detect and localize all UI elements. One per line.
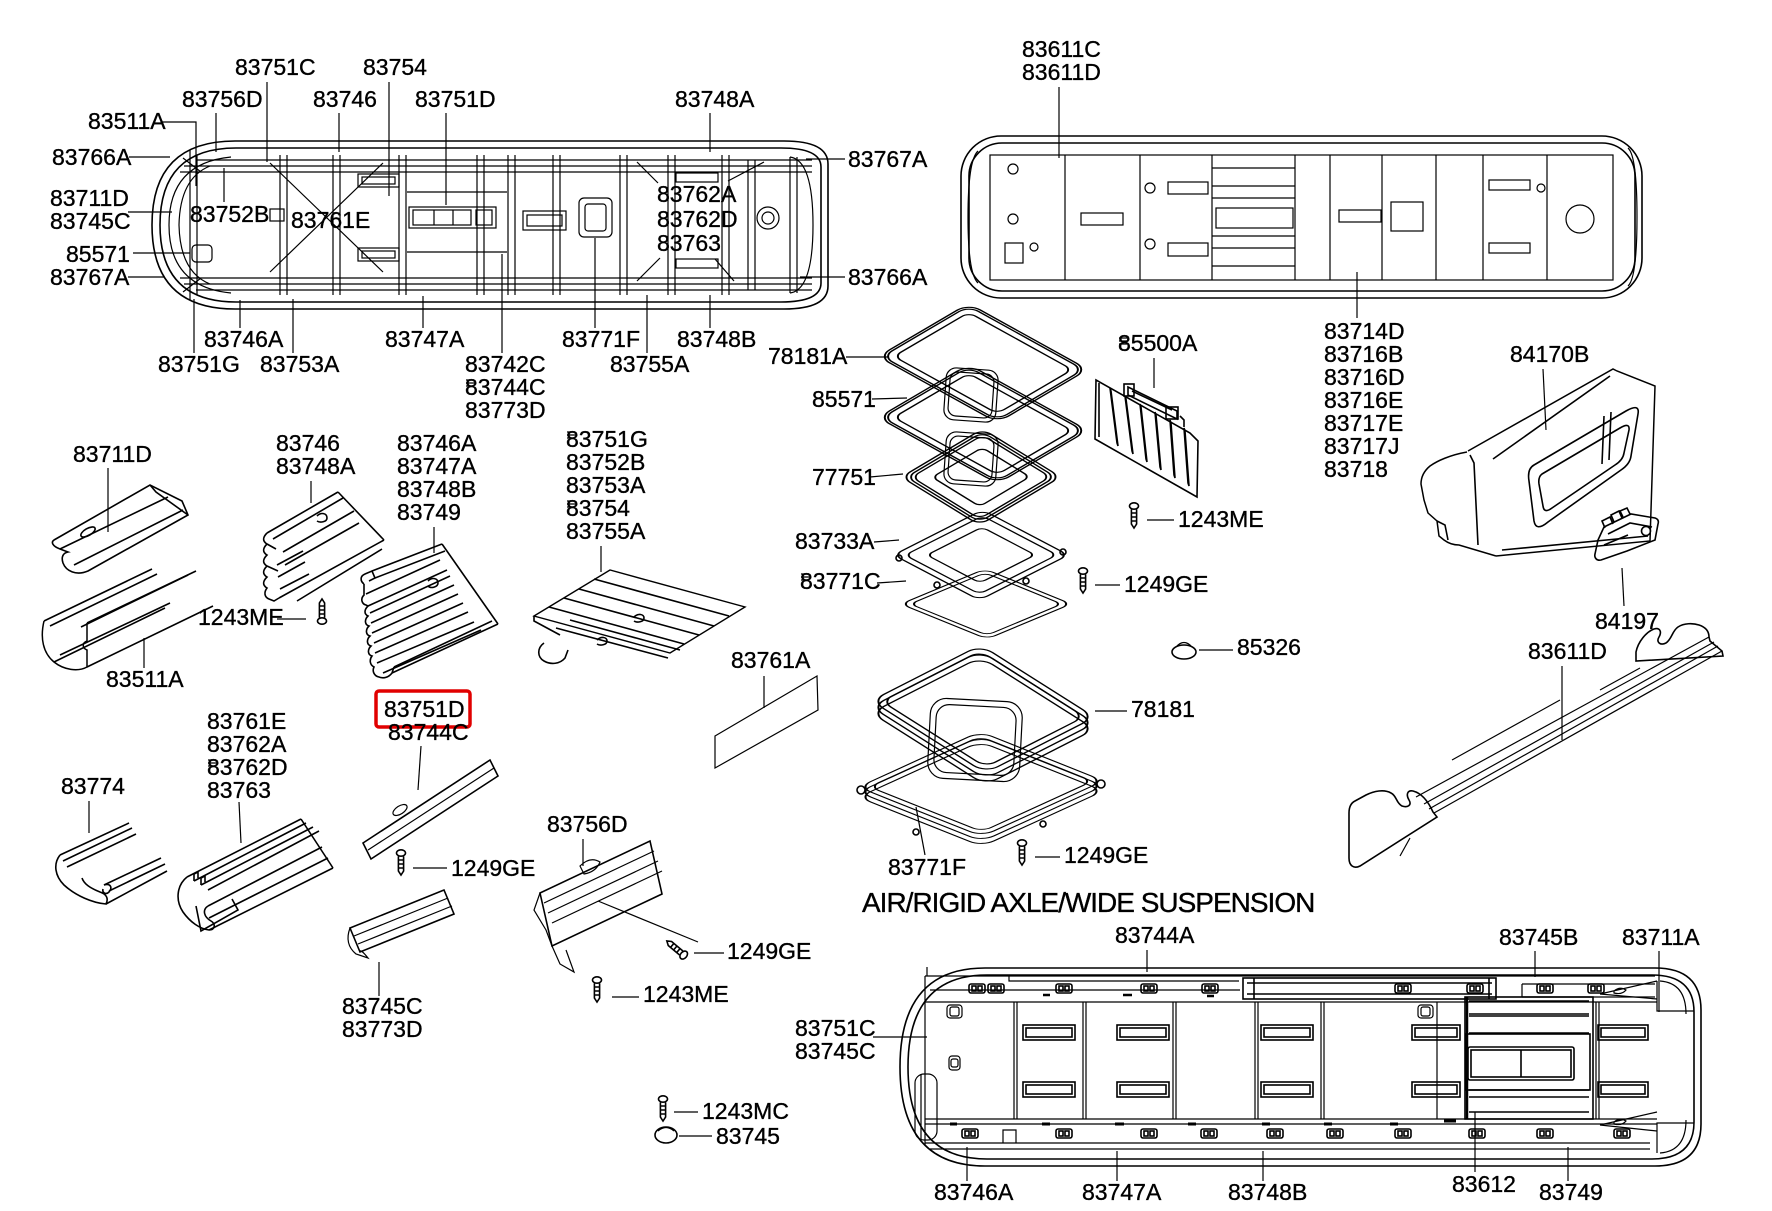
svg-text:1243MC: 1243MC: [702, 1098, 789, 1124]
svg-text:83774: 83774: [61, 773, 125, 799]
svg-text:83767A: 83767A: [848, 146, 928, 172]
svg-text:83748A: 83748A: [276, 453, 356, 479]
svg-text:83749: 83749: [397, 499, 461, 525]
svg-text:77751: 77751: [812, 464, 876, 490]
svg-text:83771F: 83771F: [562, 326, 640, 352]
svg-text:83749: 83749: [1539, 1179, 1603, 1205]
svg-text:1243ME: 1243ME: [1178, 506, 1264, 532]
svg-text:83511A: 83511A: [106, 666, 184, 692]
svg-text:85326: 85326: [1237, 634, 1301, 660]
svg-text:1249GE: 1249GE: [727, 938, 811, 964]
svg-text:83745B: 83745B: [1499, 924, 1578, 950]
svg-text:83771C: 83771C: [800, 568, 881, 594]
svg-text:83612: 83612: [1452, 1171, 1516, 1197]
svg-text:78181: 78181: [1131, 696, 1195, 722]
svg-text:83755A: 83755A: [566, 518, 646, 544]
svg-text:83748B: 83748B: [1228, 1179, 1307, 1205]
svg-text:85500A: 85500A: [1118, 330, 1198, 356]
svg-text:83754: 83754: [363, 54, 427, 80]
svg-text:83767A: 83767A: [50, 264, 130, 290]
svg-text:83711D: 83711D: [73, 441, 152, 467]
svg-text:83745C: 83745C: [50, 208, 131, 234]
svg-text:1243ME: 1243ME: [198, 604, 284, 630]
svg-text:83748A: 83748A: [675, 86, 755, 112]
svg-text:83745: 83745: [716, 1123, 780, 1149]
svg-text:83756D: 83756D: [182, 86, 263, 112]
svg-text:1243ME: 1243ME: [643, 981, 729, 1007]
svg-text:83753A: 83753A: [260, 351, 340, 377]
svg-text:83511A: 83511A: [88, 108, 166, 134]
svg-text:83766A: 83766A: [848, 264, 928, 290]
svg-text:AIR/RIGID AXLE/WIDE SUSPENSION: AIR/RIGID AXLE/WIDE SUSPENSION: [862, 887, 1314, 918]
svg-text:83762A: 83762A: [657, 181, 737, 207]
svg-text:83773D: 83773D: [342, 1016, 423, 1042]
svg-text:83746: 83746: [313, 86, 377, 112]
svg-text:83751D: 83751D: [415, 86, 496, 112]
svg-text:83761E: 83761E: [291, 207, 370, 233]
svg-text:83744C: 83744C: [388, 719, 469, 745]
svg-text:85571: 85571: [812, 386, 876, 412]
svg-text:83745C: 83745C: [795, 1038, 876, 1064]
svg-text:83762D: 83762D: [657, 206, 738, 232]
svg-text:83756D: 83756D: [547, 811, 628, 837]
svg-text:83771F: 83771F: [888, 854, 966, 880]
svg-text:1249GE: 1249GE: [451, 855, 535, 881]
svg-text:78181A: 78181A: [768, 343, 848, 369]
svg-text:1249GE: 1249GE: [1124, 571, 1208, 597]
svg-text:83751G: 83751G: [158, 351, 240, 377]
svg-text:83766A: 83766A: [52, 144, 132, 170]
svg-text:83718: 83718: [1324, 456, 1388, 482]
svg-text:84197: 84197: [1595, 608, 1659, 634]
svg-text:83751C: 83751C: [235, 54, 316, 80]
svg-text:1249GE: 1249GE: [1064, 842, 1148, 868]
svg-text:83763: 83763: [207, 777, 271, 803]
svg-text:83752B: 83752B: [190, 201, 269, 227]
svg-text:83611D: 83611D: [1528, 638, 1607, 664]
svg-text:83711A: 83711A: [1622, 924, 1700, 950]
svg-text:83744A: 83744A: [1115, 922, 1195, 948]
svg-text:83746A: 83746A: [934, 1179, 1014, 1205]
svg-text:83747A: 83747A: [1082, 1179, 1162, 1205]
svg-text:83733A: 83733A: [795, 528, 875, 554]
svg-text:84170B: 84170B: [1510, 341, 1589, 367]
svg-text:83748B: 83748B: [677, 326, 756, 352]
svg-text:83611D: 83611D: [1022, 59, 1101, 85]
svg-text:83747A: 83747A: [385, 326, 465, 352]
svg-text:83761A: 83761A: [731, 647, 811, 673]
svg-text:83773D: 83773D: [465, 397, 546, 423]
svg-text:83763: 83763: [657, 230, 721, 256]
svg-text:83746A: 83746A: [204, 326, 284, 352]
svg-text:83755A: 83755A: [610, 351, 690, 377]
